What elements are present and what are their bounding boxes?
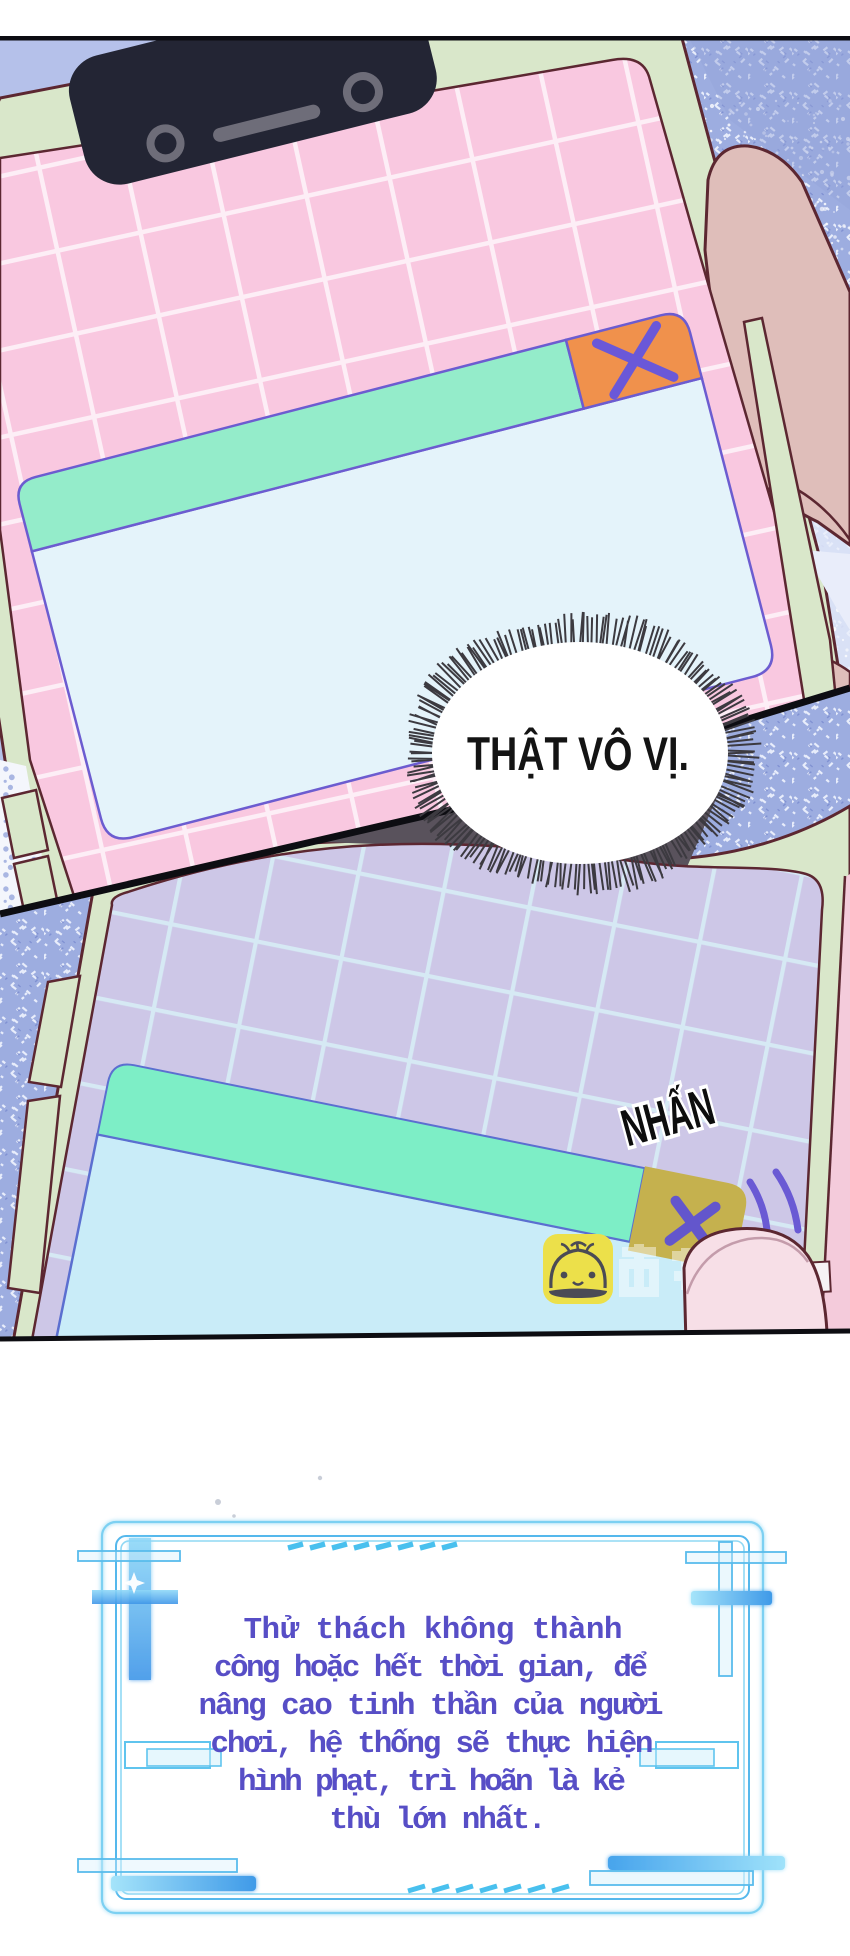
svg-text:nâng cao tinh thần của người: nâng cao tinh thần của người	[199, 1689, 664, 1724]
svg-text:thù lớn nhất.: thù lớn nhất.	[330, 1803, 547, 1838]
svg-text:chơi, hệ thống sẽ thực hiện: chơi, hệ thống sẽ thực hiện	[211, 1727, 654, 1762]
svg-text:Thử thách không thành: Thử thách không thành	[244, 1613, 623, 1648]
svg-text:THẬT VÔ VỊ.: THẬT VÔ VỊ.	[467, 727, 689, 780]
svg-text:hình phạt, trì hoãn là kẻ: hình phạt, trì hoãn là kẻ	[238, 1765, 626, 1800]
svg-text:công hoặc hết thời gian, để: công hoặc hết thời gian, để	[214, 1649, 648, 1686]
